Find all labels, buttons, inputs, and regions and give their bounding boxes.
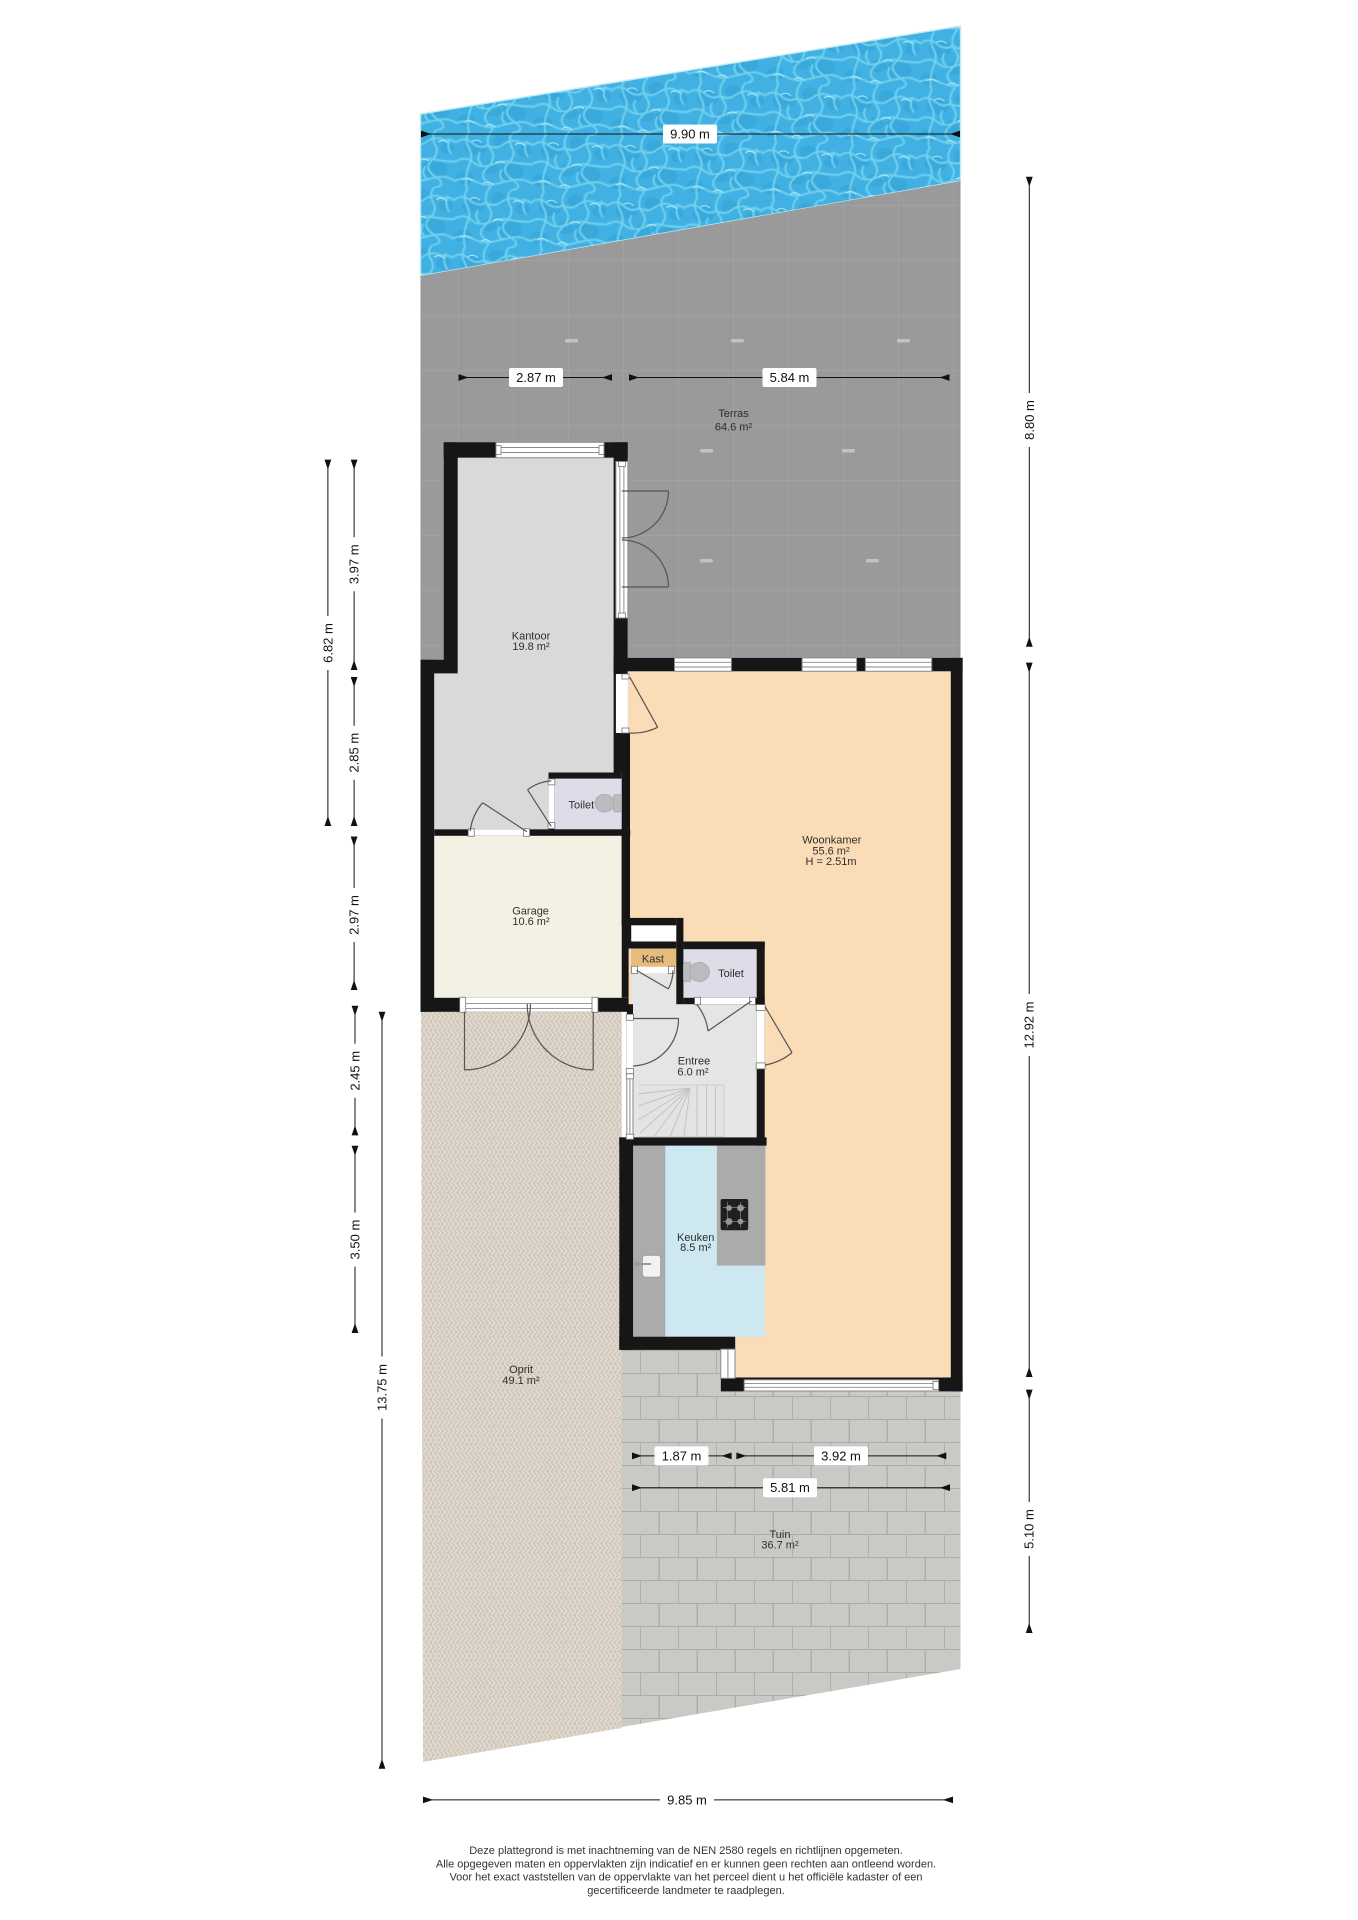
svg-text:2.85 m: 2.85 m [347, 733, 362, 773]
svg-text:2.87 m: 2.87 m [516, 370, 556, 385]
svg-text:9.85 m: 9.85 m [667, 1792, 707, 1807]
svg-text:3.92 m: 3.92 m [821, 1448, 861, 1463]
svg-text:9.90 m: 9.90 m [670, 127, 710, 142]
svg-text:Kast: Kast [642, 953, 664, 965]
svg-text:12.92 m: 12.92 m [1022, 1002, 1037, 1049]
svg-text:6.82 m: 6.82 m [320, 623, 335, 663]
svg-text:2.97 m: 2.97 m [347, 895, 362, 935]
svg-text:Voor het exact vaststellen van: Voor het exact vaststellen van de opperv… [449, 1872, 922, 1884]
svg-text:8.5 m²: 8.5 m² [680, 1242, 712, 1254]
svg-text:Toilet: Toilet [718, 968, 744, 980]
svg-text:gecertificeerde landmeter te r: gecertificeerde landmeter te raadplegen. [587, 1885, 785, 1897]
svg-text:5.84 m: 5.84 m [770, 370, 810, 385]
svg-text:Deze plattegrond is met inacht: Deze plattegrond is met inachtneming van… [469, 1845, 903, 1857]
svg-text:Terras: Terras [718, 408, 749, 420]
svg-text:64.6 m²: 64.6 m² [715, 422, 753, 434]
svg-text:2.45 m: 2.45 m [348, 1051, 363, 1091]
svg-text:3.50 m: 3.50 m [348, 1220, 363, 1260]
svg-text:36.7 m²: 36.7 m² [761, 1540, 799, 1552]
svg-text:49.1 m²: 49.1 m² [502, 1375, 540, 1387]
svg-text:Alle opgegeven maten en opperv: Alle opgegeven maten en oppervlakten zij… [436, 1858, 936, 1870]
svg-text:19.8 m²: 19.8 m² [512, 641, 550, 653]
svg-text:5.10 m: 5.10 m [1022, 1509, 1037, 1549]
svg-text:6.0 m²: 6.0 m² [677, 1067, 709, 1079]
svg-text:3.97 m: 3.97 m [347, 544, 362, 584]
svg-text:Toilet: Toilet [569, 800, 595, 812]
svg-text:10.6 m²: 10.6 m² [512, 916, 550, 928]
svg-text:13.75 m: 13.75 m [375, 1364, 390, 1411]
svg-text:5.81 m: 5.81 m [770, 1480, 810, 1495]
svg-text:8.80 m: 8.80 m [1022, 400, 1037, 440]
svg-text:1.87 m: 1.87 m [662, 1448, 702, 1463]
svg-text:H = 2.51m: H = 2.51m [805, 856, 856, 868]
